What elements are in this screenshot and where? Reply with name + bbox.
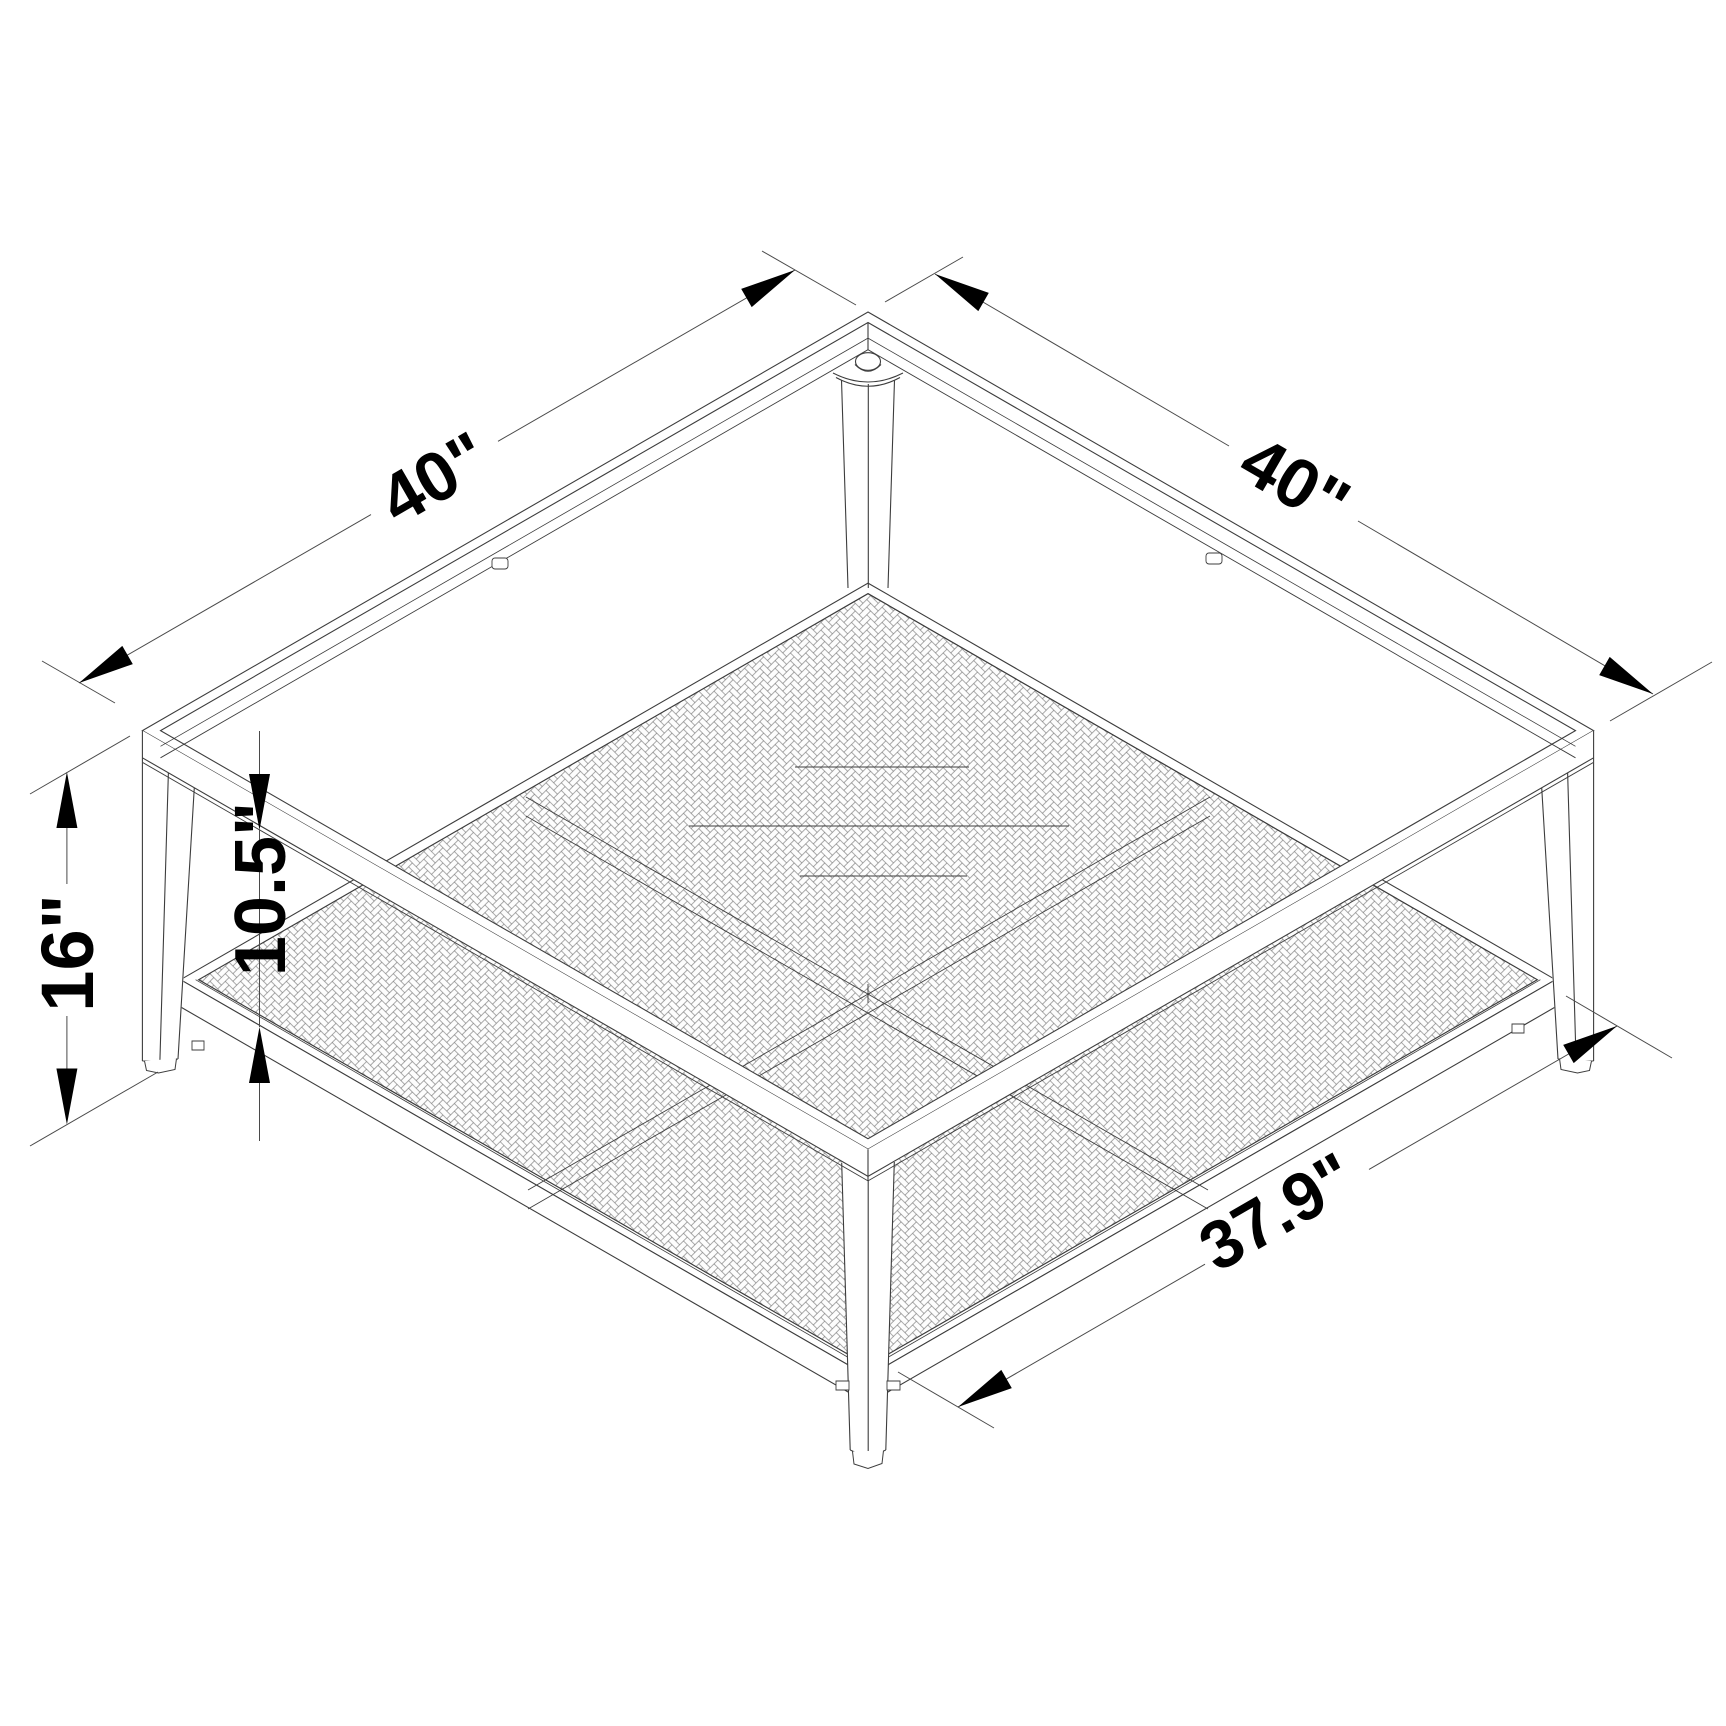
- svg-text:16": 16": [26, 894, 109, 1011]
- svg-text:10.5": 10.5": [221, 802, 301, 976]
